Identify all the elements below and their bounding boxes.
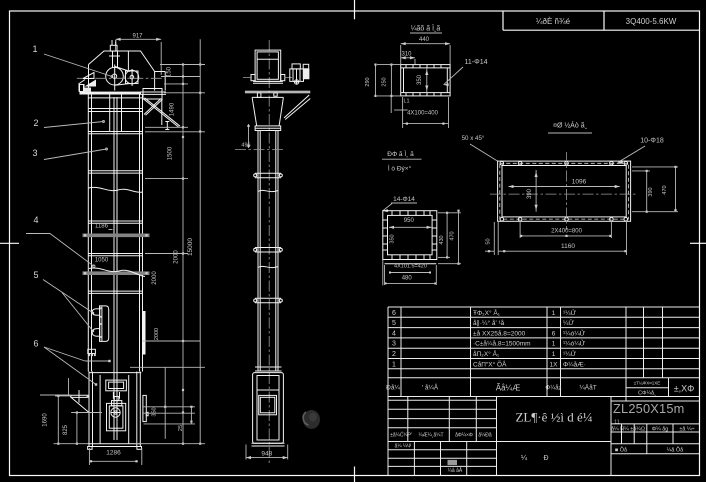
svg-text:¼å åÅ: ¼å åÅ — [448, 467, 463, 474]
svg-text:6: 6 — [392, 310, 396, 317]
svg-text:1096: 1096 — [572, 179, 587, 186]
svg-text:¼Ử: ¼Ử — [563, 318, 574, 327]
svg-text:350: 350 — [152, 407, 158, 416]
svg-text:825: 825 — [63, 424, 69, 435]
svg-text:Ðå¼: Ðå¼ — [386, 384, 400, 392]
svg-text:350: 350 — [417, 74, 423, 85]
svg-text:290: 290 — [365, 77, 371, 86]
svg-text:6: 6 — [552, 330, 556, 337]
svg-text:1X: 1X — [550, 361, 559, 368]
svg-text:917: 917 — [132, 33, 143, 39]
svg-text:CåΠ″X° ÕÅ: CåΠ″X° ÕÅ — [473, 359, 507, 368]
svg-text:±å ¼÷: ±å ¼÷ — [679, 426, 694, 433]
svg-text:4X100=400: 4X100=400 — [407, 111, 439, 117]
svg-text:1: 1 — [552, 351, 556, 358]
svg-text:11: 11 — [614, 420, 620, 426]
svg-text:CΦ¼å¸: CΦ¼å¸ — [638, 390, 656, 397]
svg-text:¼ðÈ ñ¾é: ¼ðÈ ñ¾é — [536, 17, 571, 26]
svg-text:1490: 1490 — [170, 102, 176, 116]
svg-text:¹¼ó¼Ử: ¹¼ó¼Ử — [563, 339, 586, 348]
svg-text:440: 440 — [419, 37, 430, 43]
svg-text:¼Æ¼¸å¼Τ: ¼Æ¼¸å¼Τ — [418, 432, 443, 439]
svg-text:¼: ¼ — [521, 453, 528, 462]
svg-text:1: 1 — [552, 310, 556, 317]
svg-text:470: 470 — [450, 231, 456, 240]
svg-text:±,XΦ: ±,XΦ — [674, 384, 695, 394]
svg-text:å∥·¼° å′ ¹å: å∥·¼° å′ ¹å — [473, 319, 505, 327]
svg-text:′ å¼Å: ′ å¼Å — [422, 383, 439, 392]
svg-text:■ Õå: ■ Õå — [615, 447, 628, 454]
svg-text:¼å Õå: ¼å Õå — [667, 447, 684, 454]
svg-text:25: 25 — [178, 425, 184, 431]
svg-text:åΠ₂X° Å₁: åΠ₂X° Å₁ — [473, 349, 500, 358]
svg-text:2000: 2000 — [174, 250, 180, 264]
svg-text:å¼Ðå: å¼Ðå — [478, 432, 492, 439]
svg-text:15000: 15000 — [187, 238, 194, 256]
svg-text:480: 480 — [402, 276, 413, 282]
svg-text:L1: L1 — [403, 99, 409, 105]
svg-text:å¼ ¼Ψ: å¼ ¼Ψ — [395, 443, 412, 450]
svg-text:1500: 1500 — [168, 146, 174, 160]
svg-text:ZL¶·ê ½ì d é¼: ZL¶·ê ½ì d é¼ — [515, 410, 592, 425]
svg-text:2: 2 — [33, 118, 38, 128]
svg-text:1: 1 — [392, 361, 396, 368]
svg-text:¹¼Ử: ¹¼Ử — [563, 349, 577, 358]
svg-text:11-Φ14: 11-Φ14 — [465, 59, 488, 66]
svg-text:350: 350 — [390, 234, 396, 243]
svg-text:390: 390 — [527, 188, 533, 199]
svg-text:1: 1 — [552, 341, 556, 348]
svg-text:50: 50 — [486, 238, 492, 244]
svg-text:åΦ¼×Φ: åΦ¼×Φ — [455, 432, 473, 439]
svg-text:±å¼Ć¼P′: ±å¼Ć¼P′ — [390, 432, 412, 439]
svg-text:50 x 45°: 50 x 45° — [462, 135, 485, 142]
svg-text:ŦΦ₂X° Å₁: ŦΦ₂X° Å₁ — [473, 308, 501, 317]
svg-text:Ì ò Ðý×°: Ì ò Ðý×° — [388, 164, 412, 173]
svg-text:470: 470 — [662, 185, 668, 194]
svg-text:2: 2 — [392, 351, 396, 358]
svg-text:4X101.5=420: 4X101.5=420 — [394, 264, 427, 270]
svg-text:å¼ Ñ¼ ±å¼Ω: å¼ Ñ¼ ±å¼Ω — [611, 426, 645, 433]
svg-text:3: 3 — [392, 341, 396, 348]
svg-text:¹¼Ử: ¹¼Ử — [563, 308, 577, 317]
svg-text:¹¼ó¼Ử: ¹¼ó¼Ử — [563, 328, 586, 337]
svg-text:Ð: Ð — [543, 455, 548, 462]
svg-text:ZL250X15m: ZL250X15m — [613, 401, 685, 416]
svg-text:1186: 1186 — [95, 223, 109, 229]
svg-text:950: 950 — [404, 218, 415, 224]
svg-text:4: 4 — [33, 215, 38, 225]
svg-text:¼ãõ ã Ì¸ã: ¼ãõ ã Ì¸ã — [411, 24, 441, 33]
svg-text:Φ¼åÆ·: Φ¼åÆ· — [563, 360, 586, 368]
svg-text:14-Φ14: 14-Φ14 — [393, 196, 415, 203]
svg-text:Φ¼åz: Φ¼åz — [545, 385, 561, 392]
svg-text:2000: 2000 — [152, 271, 158, 285]
svg-text:10-Φ18: 10-Φ18 — [640, 138, 664, 145]
svg-text:1690: 1690 — [43, 413, 49, 427]
svg-text:3Q400-5.6KW: 3Q400-5.6KW — [626, 17, 677, 26]
svg-text:ÐΦ ã Ì¸ ã: ÐΦ ã Ì¸ ã — [387, 149, 414, 158]
svg-text:1: 1 — [32, 44, 37, 54]
svg-text:150: 150 — [167, 66, 173, 77]
svg-text:2000: 2000 — [154, 328, 160, 340]
svg-text:5: 5 — [33, 270, 38, 280]
svg-text:250: 250 — [382, 77, 388, 86]
svg-text:·C±å¼å.8=1500mm: ·C±å¼å.8=1500mm — [473, 340, 531, 348]
svg-text:±å XX25å.8=2000: ±å XX25å.8=2000 — [473, 329, 526, 337]
svg-text:1160: 1160 — [561, 243, 575, 250]
svg-text:1050: 1050 — [95, 258, 109, 264]
svg-text:5: 5 — [392, 320, 396, 327]
svg-text:430: 430 — [439, 235, 445, 244]
svg-text:948: 948 — [261, 451, 272, 458]
svg-text:¼ÄåT: ¼ÄåT — [579, 384, 596, 392]
svg-text:4: 4 — [392, 330, 396, 337]
svg-text:1286: 1286 — [106, 450, 121, 457]
svg-text:2X400=800: 2X400=800 — [551, 229, 583, 235]
svg-text:Ãå¼Æ: Ãå¼Æ — [496, 384, 520, 393]
svg-text:Φ¼ åg: Φ¼ åg — [652, 426, 669, 433]
svg-text:6: 6 — [33, 339, 38, 349]
svg-text:3: 3 — [32, 148, 37, 158]
svg-text:390: 390 — [648, 187, 654, 196]
svg-text:¤Ø ½Áò ã˼: ¤Ø ½Áò ã˼ — [553, 121, 587, 130]
svg-text:±T¼ΦX¤1ΧΕ: ±T¼ΦX¤1ΧΕ — [634, 381, 661, 386]
